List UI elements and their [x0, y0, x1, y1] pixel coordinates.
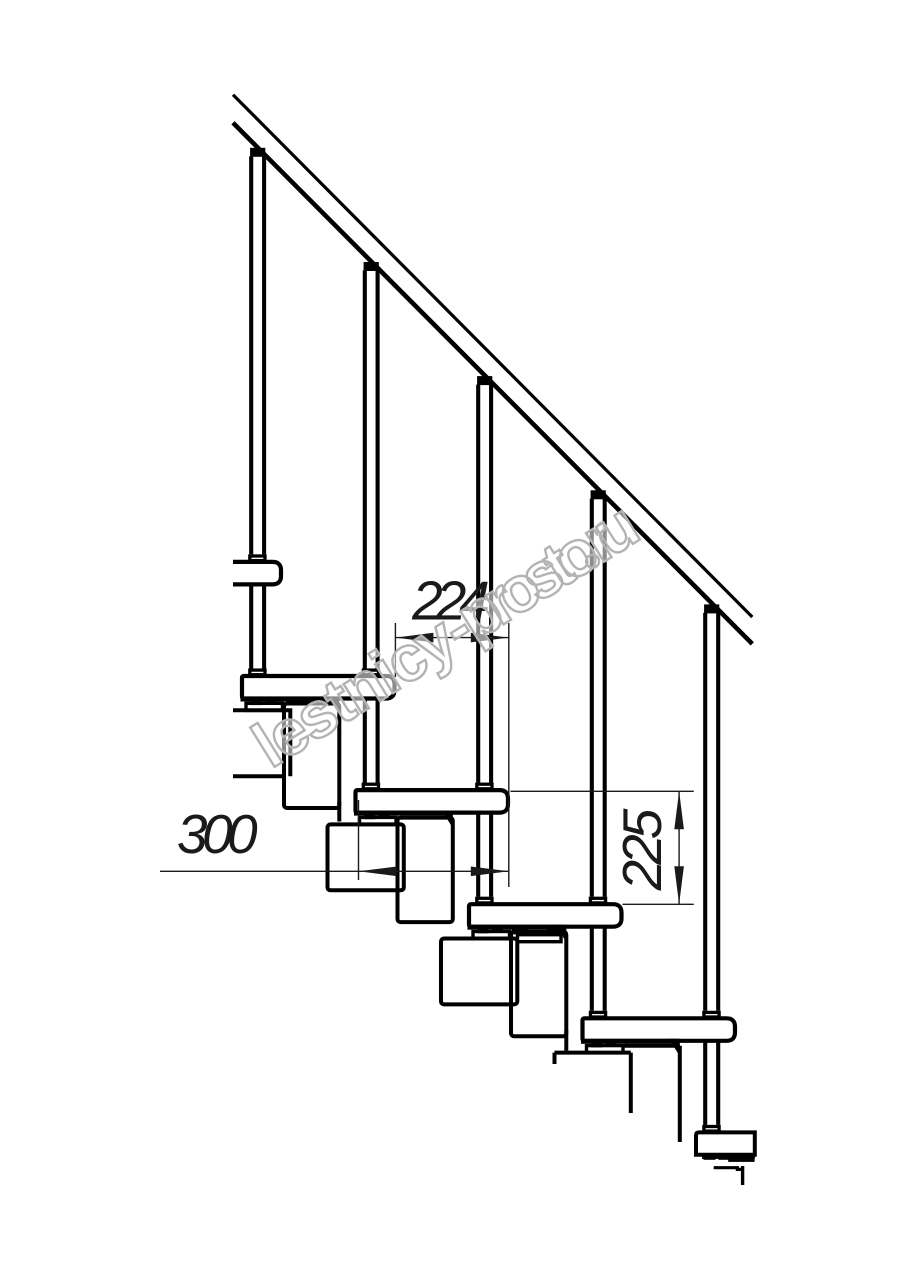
svg-text:225: 225: [611, 808, 673, 891]
svg-text:300: 300: [177, 803, 258, 865]
